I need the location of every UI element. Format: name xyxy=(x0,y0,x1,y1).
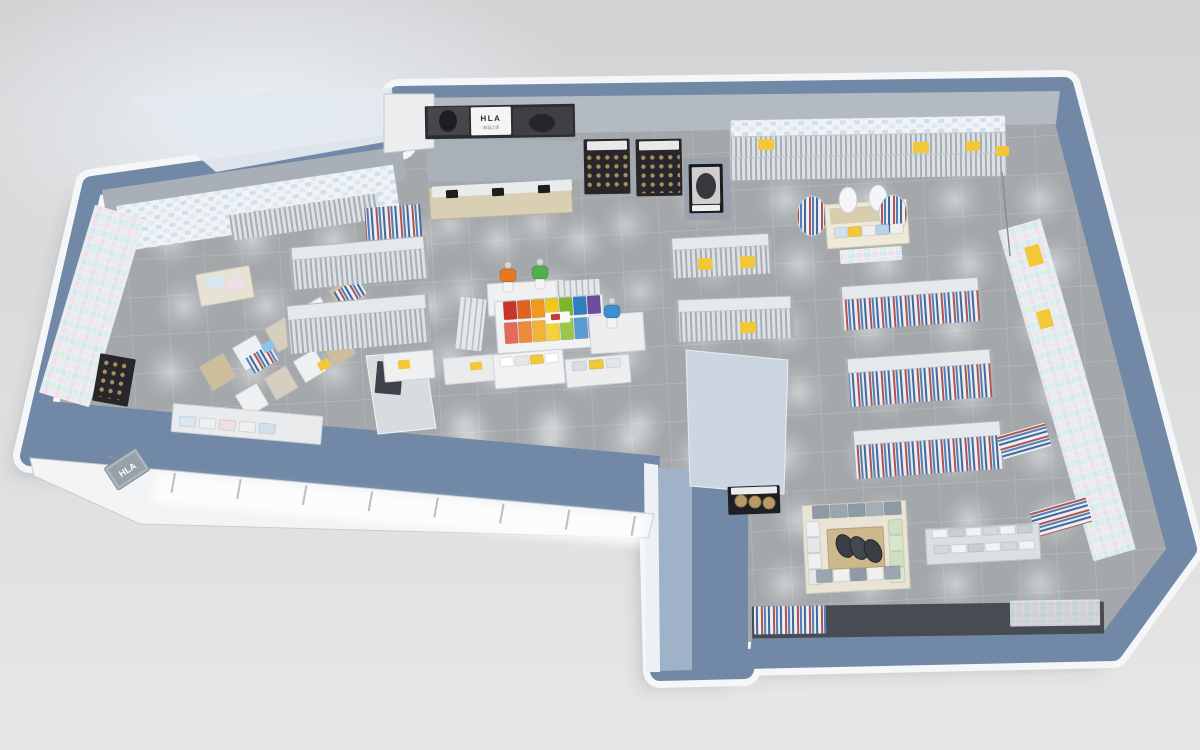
rack-mid-2 xyxy=(675,296,794,342)
rack-mid-1-yellow-2 xyxy=(740,256,756,269)
cashier-monitor-2 xyxy=(492,188,504,197)
center-block-edge xyxy=(644,463,660,672)
shelf-yellow-1 xyxy=(758,139,774,150)
shelf-yellow-4 xyxy=(996,146,1009,156)
fitting-block xyxy=(686,350,788,494)
hat-1 xyxy=(735,495,747,507)
lights-right-wing xyxy=(770,235,828,293)
lights-left-wing xyxy=(142,344,198,400)
hat-3 xyxy=(763,497,775,509)
bust-mannequin-1 xyxy=(839,187,857,213)
accessory-cabinet-1-sign xyxy=(587,141,627,151)
billboard-brand-sign: HLA 海澜之家 xyxy=(480,114,501,131)
rack-mid-1 xyxy=(669,233,773,278)
south-wall-hang xyxy=(754,605,826,634)
rainbow-sign-red xyxy=(551,314,560,321)
cash-wall-face xyxy=(428,138,588,182)
front-table-1-accent xyxy=(398,359,411,369)
store-floorplan-svg: HLA 海澜之家 HLA xyxy=(0,0,1200,750)
accessory-cabinet-2-sign xyxy=(639,141,679,151)
round-rack-1 xyxy=(797,196,827,236)
poster-figure xyxy=(696,173,716,199)
accessory-cabinet-1-items xyxy=(586,152,629,192)
center-block-side xyxy=(656,467,692,671)
poster-caption xyxy=(692,205,720,211)
cashier-monitor-3 xyxy=(538,185,550,194)
rack-mid-2-yellow xyxy=(740,322,756,334)
billboard-brand-text: HLA xyxy=(480,114,501,123)
front-table-2-accent xyxy=(470,361,483,370)
center-side-rack xyxy=(455,297,486,351)
shelf-yellow-3 xyxy=(966,141,980,151)
billboard-figure-right xyxy=(529,114,555,132)
shelf-yellow-2 xyxy=(913,142,929,153)
rack-mid-1-yellow-1 xyxy=(698,258,713,271)
lights-center xyxy=(613,264,667,318)
store-render: HLA 海澜之家 HLA xyxy=(0,0,1200,750)
south-wall-stock xyxy=(1010,599,1100,626)
accessory-cabinet-2-items xyxy=(638,152,681,194)
lights-right-wing xyxy=(926,171,984,229)
billboard-figure-left xyxy=(439,110,457,132)
cashier-monitor-1 xyxy=(446,190,458,199)
lights-center xyxy=(599,198,653,252)
hat-2 xyxy=(749,496,761,508)
